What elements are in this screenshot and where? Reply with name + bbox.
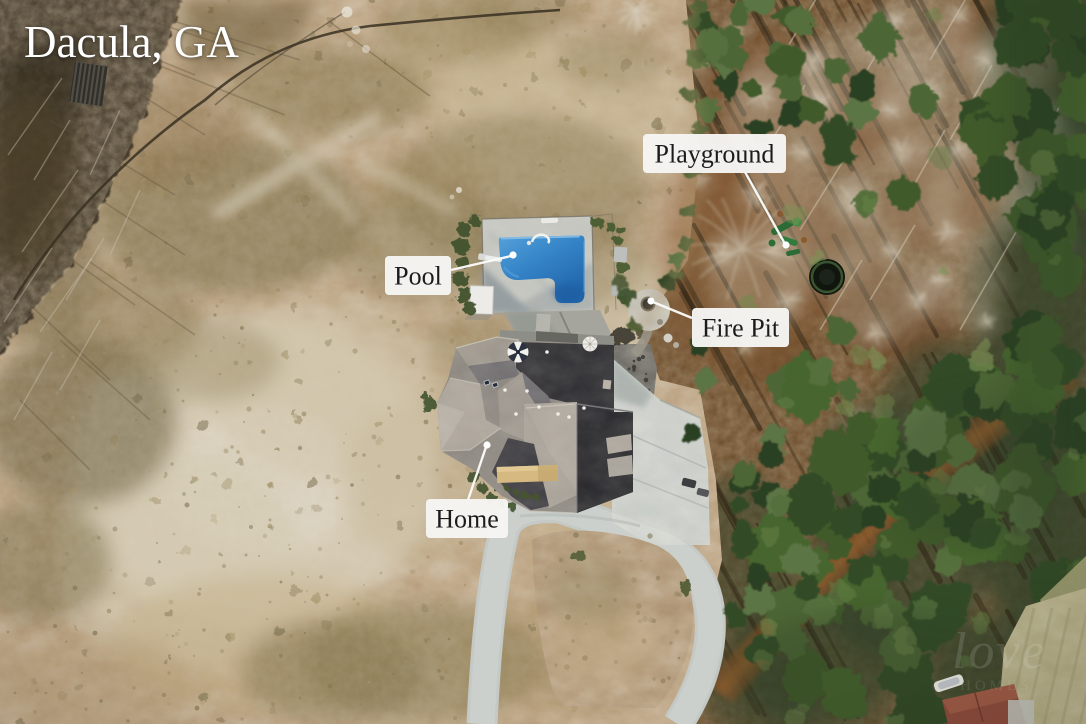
svg-text:Home: Home	[435, 505, 499, 534]
svg-text:Fire Pit: Fire Pit	[702, 314, 780, 343]
svg-text:Pool: Pool	[394, 262, 442, 291]
svg-text:Dacula, GA: Dacula, GA	[24, 17, 239, 67]
svg-text:Playground: Playground	[655, 140, 775, 169]
